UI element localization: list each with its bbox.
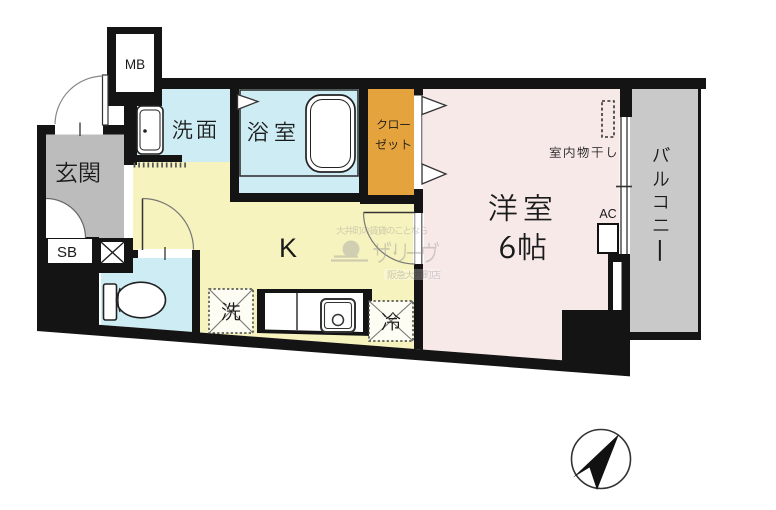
svg-text:AC: AC bbox=[599, 207, 616, 221]
svg-text:K: K bbox=[279, 233, 297, 263]
svg-text:MB: MB bbox=[125, 57, 145, 72]
svg-text:SB: SB bbox=[57, 244, 77, 261]
